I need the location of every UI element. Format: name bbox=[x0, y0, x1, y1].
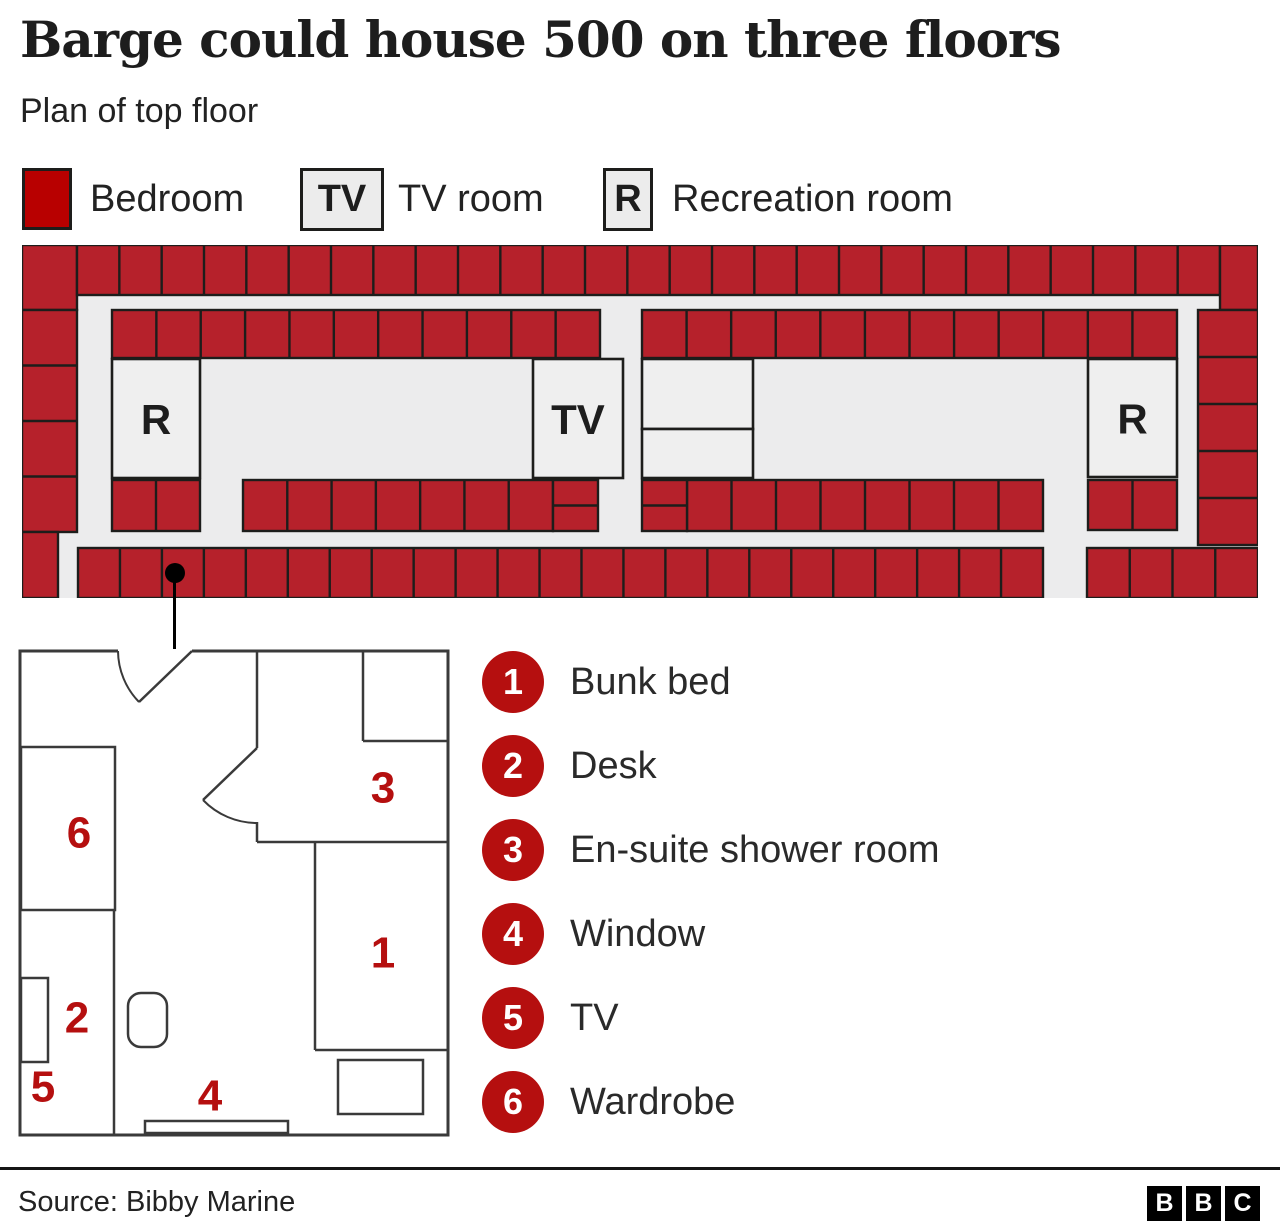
fixture-number-label: 4 bbox=[198, 1072, 223, 1121]
recreation-room-label: Recreation room bbox=[672, 168, 953, 231]
infographic-page: Barge could house 500 on three floors Pl… bbox=[0, 0, 1280, 1230]
item-label: Desk bbox=[570, 745, 657, 788]
item-number-badge: 4 bbox=[482, 903, 544, 965]
room-label: R bbox=[1117, 396, 1147, 443]
key-item: 1Bunk bed bbox=[482, 651, 940, 713]
bbc-logo: BBC bbox=[1147, 1186, 1264, 1221]
key-item: 6Wardrobe bbox=[482, 1071, 940, 1133]
item-label: Wardrobe bbox=[570, 1081, 735, 1124]
connector-line bbox=[173, 580, 176, 652]
key-item: 3En-suite shower room bbox=[482, 819, 940, 881]
bedroom-cell-strip bbox=[112, 310, 600, 358]
fixture-number-label: 2 bbox=[65, 994, 89, 1043]
key-item: 5TV bbox=[482, 987, 940, 1049]
key-item: 4Window bbox=[482, 903, 940, 965]
room-label: TV bbox=[551, 396, 605, 443]
fixture-number-label: 3 bbox=[371, 764, 395, 813]
utility-room bbox=[642, 359, 753, 429]
item-label: Window bbox=[570, 913, 705, 956]
bedroom-cell-strip bbox=[22, 532, 58, 598]
bbc-logo-letter: C bbox=[1225, 1186, 1260, 1221]
page-subtitle: Plan of top floor bbox=[20, 92, 258, 131]
item-number-badge: 5 bbox=[482, 987, 544, 1049]
item-number-badge: 2 bbox=[482, 735, 544, 797]
fixture bbox=[338, 1060, 423, 1114]
item-number-badge: 6 bbox=[482, 1071, 544, 1133]
bedroom-cell-strip bbox=[77, 245, 1220, 295]
source-credit: Source: Bibby Marine bbox=[18, 1186, 295, 1219]
bbc-logo-letter: B bbox=[1186, 1186, 1221, 1221]
floor-plan-diagram: RTVR bbox=[22, 245, 1258, 598]
bedroom-swatch bbox=[22, 168, 72, 230]
bedroom-label: Bedroom bbox=[90, 168, 244, 231]
r-box-label: R bbox=[614, 178, 641, 221]
recreation-room-box: R bbox=[603, 168, 653, 231]
key-item: 2Desk bbox=[482, 735, 940, 797]
bedroom-cell-strip bbox=[243, 480, 553, 531]
tv-room-label: TV room bbox=[398, 168, 544, 231]
fixture-number-label: 6 bbox=[67, 809, 91, 858]
footer-divider bbox=[0, 1167, 1280, 1170]
page-title: Barge could house 500 on three floors bbox=[20, 10, 1061, 69]
utility-room bbox=[642, 429, 753, 478]
item-label: TV bbox=[570, 997, 619, 1040]
item-label: Bunk bed bbox=[570, 661, 731, 704]
room-label: R bbox=[141, 396, 171, 443]
item-label: En-suite shower room bbox=[570, 829, 940, 872]
fixture bbox=[128, 993, 167, 1047]
bedroom-detail-plan: 123456 bbox=[18, 649, 450, 1137]
fixture bbox=[145, 1121, 288, 1133]
bedroom-cell-strip bbox=[1220, 245, 1258, 310]
bedroom-cell-strip bbox=[1198, 310, 1258, 545]
fixture bbox=[21, 978, 48, 1062]
corridor-background bbox=[22, 245, 1258, 598]
fixture-number-label: 1 bbox=[371, 929, 395, 978]
bedroom-cell-strip bbox=[78, 548, 1043, 598]
tv-box-label: TV bbox=[318, 178, 367, 221]
item-key-list: 1Bunk bed2Desk3En-suite shower room4Wind… bbox=[482, 651, 940, 1155]
fixture-number-label: 5 bbox=[31, 1063, 55, 1112]
item-number-badge: 1 bbox=[482, 651, 544, 713]
bedroom-cell-strip bbox=[22, 245, 77, 310]
tv-room-box: TV bbox=[300, 168, 384, 231]
bbc-logo-letter: B bbox=[1147, 1186, 1182, 1221]
item-number-badge: 3 bbox=[482, 819, 544, 881]
